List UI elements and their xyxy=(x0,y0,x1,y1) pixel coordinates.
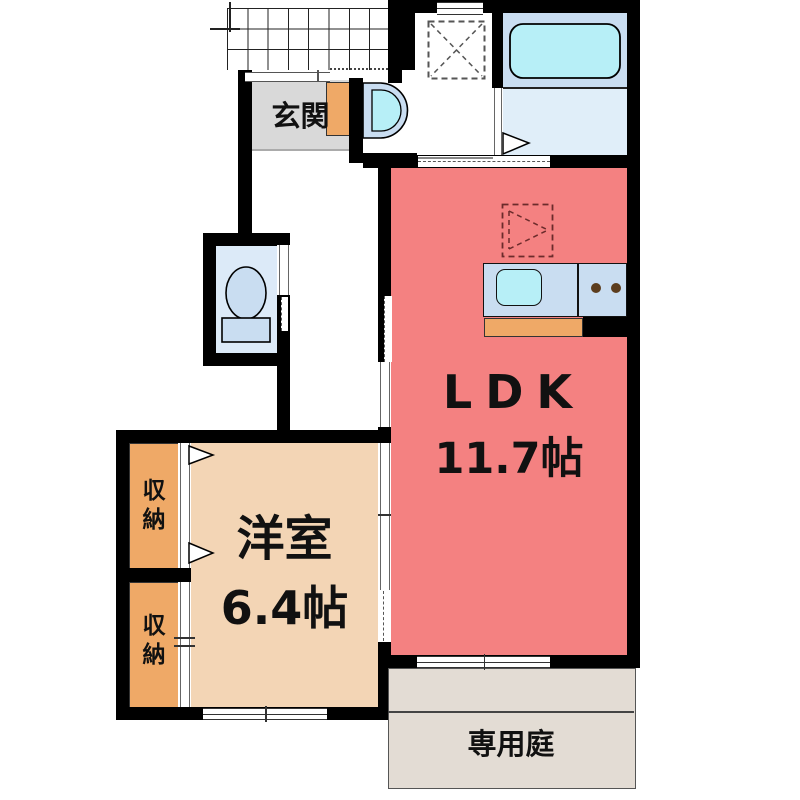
washing-machine-icon xyxy=(429,22,485,79)
ldk-size-label: 11.7帖 xyxy=(391,437,627,482)
closet-lower-label: 収納 xyxy=(140,612,168,670)
ldk-label: LDK xyxy=(391,368,627,416)
floor-plan: 玄関 LDK 11.7帖 洋室 6.4帖 収納 収納 専用庭 xyxy=(0,0,800,800)
genkan-label: 玄関 xyxy=(252,101,349,131)
toilet-icon xyxy=(222,267,270,342)
closet-upper-label: 収納 xyxy=(140,477,168,535)
western-room-size-label: 6.4帖 xyxy=(191,584,378,632)
closet-door-swing-icon xyxy=(189,446,213,464)
bathtub-icon xyxy=(510,24,620,78)
garden-label: 専用庭 xyxy=(388,729,634,759)
bathroom-door-swing-icon xyxy=(503,133,529,154)
refrigerator-icon xyxy=(503,205,553,257)
western-room-label: 洋室 xyxy=(191,514,378,564)
washbasin-icon xyxy=(363,83,407,138)
